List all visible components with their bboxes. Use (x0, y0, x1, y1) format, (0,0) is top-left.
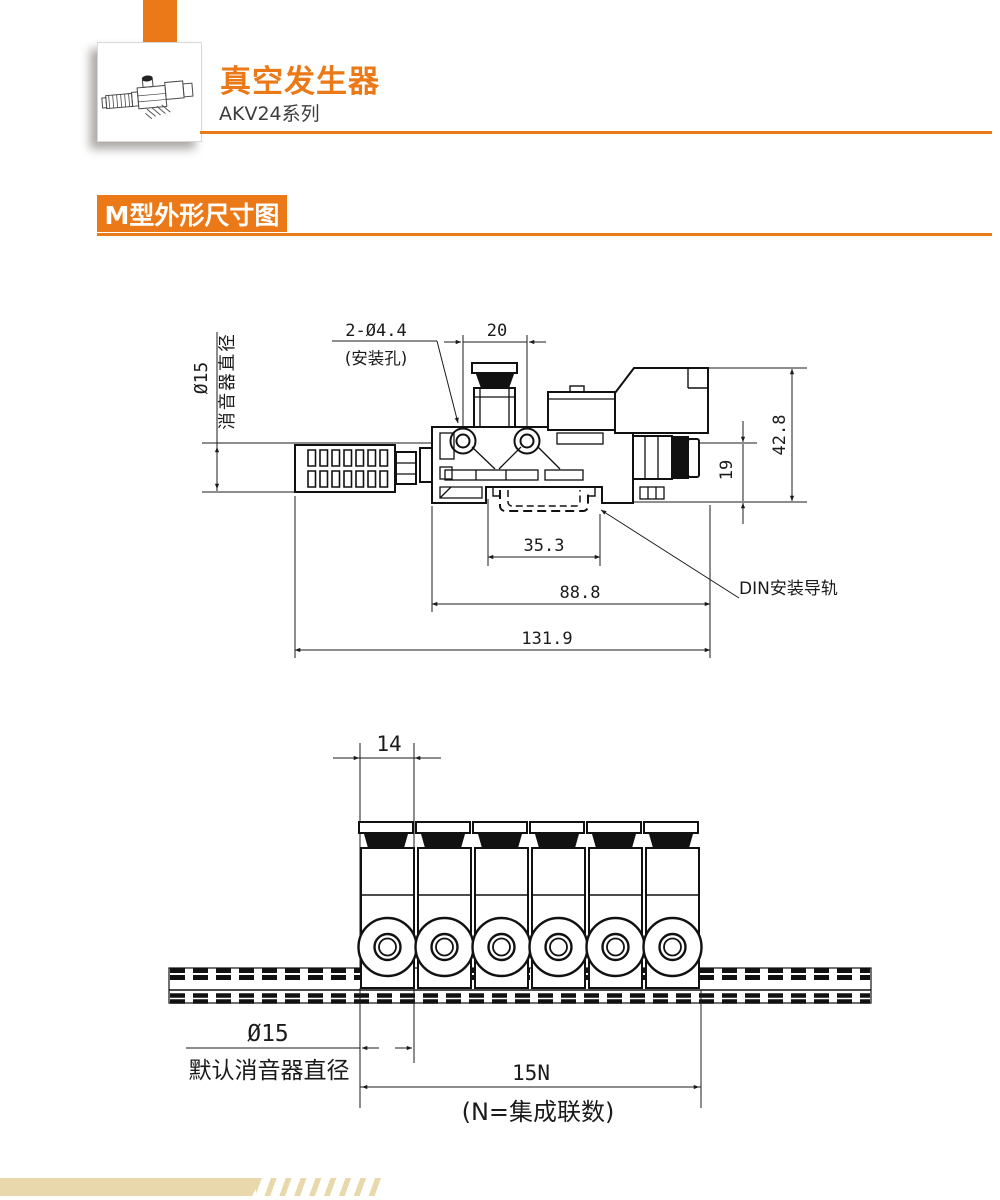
section-divider (97, 233, 992, 236)
section-label: M型外形尺寸图 (97, 195, 287, 232)
body-end-cap (420, 448, 432, 482)
dim-15n-label: 15N (512, 1061, 550, 1085)
lower-dimension-lines (186, 988, 701, 1108)
dim-mounting-holes-label: 2-Ø4.4 (345, 321, 406, 341)
dim-dia-note: 默认消音器直径 (189, 1058, 350, 1084)
dim-35-3-label: 35.3 (524, 536, 565, 556)
module-bodies (361, 848, 699, 988)
device-outline (295, 363, 708, 503)
dim-131-9-label: 131.9 (521, 629, 572, 649)
dim-14-label: 14 (376, 732, 401, 756)
footer-bar (0, 1178, 262, 1196)
push-fitting-top (472, 363, 517, 427)
manifold-modules (359, 822, 702, 988)
header-divider (200, 131, 992, 134)
dim-19-label: 19 (717, 460, 737, 480)
dim-20-label: 20 (487, 321, 507, 341)
din-rail-label: DIN安装导轨 (739, 579, 838, 599)
page-title: 真空发生器 (220, 56, 380, 101)
solenoid (615, 368, 708, 433)
product-thumbnail-sketch (98, 43, 201, 141)
din-clip (500, 490, 588, 511)
footer-stripes (256, 1178, 382, 1196)
series-subtitle: AKV24系列 (219, 99, 320, 126)
module-tops (359, 822, 698, 848)
dim-silencer-note-label: 消音器直径 (218, 332, 238, 430)
side-view-drawing: Ø15 消音器直径 2-Ø4.4 (安装孔) 20 42.8 19 35.3 8… (170, 300, 870, 680)
product-thumbnail-box (97, 42, 202, 142)
silencer-coupler (396, 452, 416, 484)
dim-42-8-label: 42.8 (770, 415, 790, 456)
push-fitting-right (633, 436, 699, 479)
header-orange-tab (143, 0, 177, 42)
dim-mounting-holes-note: (安装孔) (345, 349, 407, 368)
dim-n-note: (N=集成联数) (462, 1098, 615, 1126)
dim-88-8-label: 88.8 (560, 583, 601, 603)
dim-dia-label: Ø15 (247, 1021, 289, 1047)
dim-silencer-dia-label: Ø15 (191, 362, 212, 395)
front-view-drawing: 14 Ø15 默认消音器直径 15N (N=集成联数) (150, 700, 890, 1140)
valve-block (548, 386, 615, 430)
